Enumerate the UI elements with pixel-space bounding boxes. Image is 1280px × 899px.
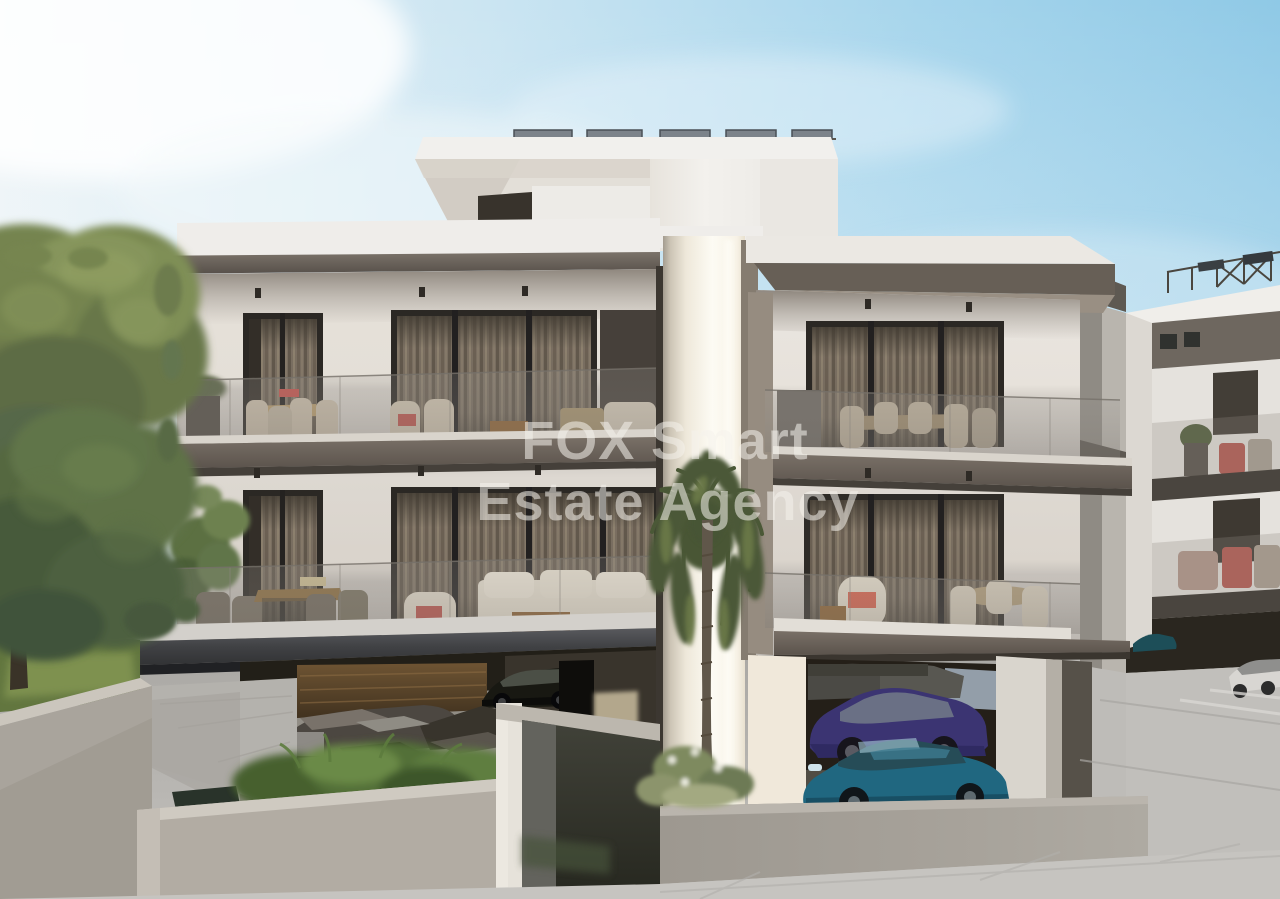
svg-text:Estate Agency: Estate Agency xyxy=(476,472,859,532)
svg-text:FOX Smart: FOX Smart xyxy=(521,411,808,471)
